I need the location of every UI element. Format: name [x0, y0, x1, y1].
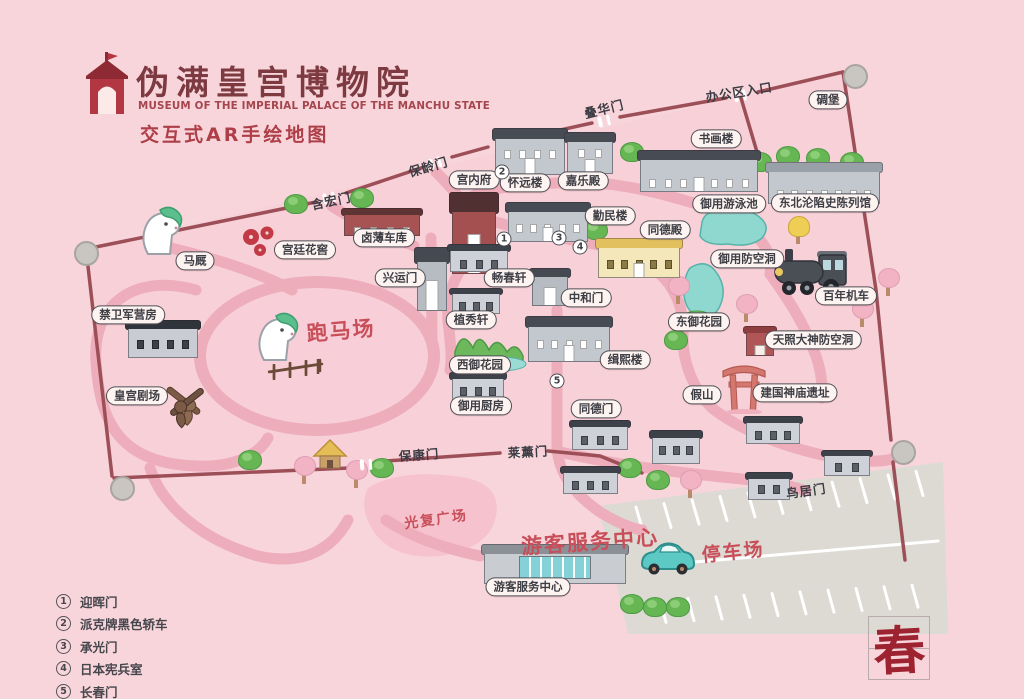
map-marker-2: 2	[495, 165, 510, 180]
building-house-b	[652, 430, 700, 464]
doorway	[525, 158, 536, 174]
window-row	[564, 481, 617, 490]
place-label-guangfuguangchang: 光复广场	[403, 505, 469, 534]
building-tongde-gate	[572, 420, 628, 450]
bush-icon	[664, 330, 688, 350]
window	[530, 224, 537, 233]
window	[673, 446, 680, 455]
window	[504, 150, 511, 159]
building-body	[567, 142, 613, 174]
window	[711, 179, 718, 188]
window	[595, 340, 602, 349]
building-body	[563, 473, 618, 494]
bubble-yuyongchufang: 御用厨房	[450, 396, 512, 415]
bubble-gongtinghuajiao: 宫廷花窖	[274, 240, 336, 259]
bubble-jialedian: 嘉乐殿	[558, 171, 609, 190]
yellow-hut-icon	[312, 438, 348, 474]
window	[773, 485, 780, 494]
doorway	[634, 263, 645, 277]
building-body	[640, 160, 758, 192]
window-row	[453, 387, 503, 396]
bush-icon	[646, 470, 670, 490]
window	[595, 149, 602, 158]
gate-doorway	[426, 280, 439, 310]
legend-label: 长春门	[80, 682, 118, 699]
legend-number-1: 1	[56, 594, 71, 609]
legend-label: 日本宪兵室	[80, 659, 143, 678]
window	[602, 481, 609, 490]
window	[607, 260, 614, 269]
map-marker-5: 5	[550, 374, 565, 389]
building-body	[508, 212, 588, 242]
window	[581, 436, 588, 445]
window	[726, 179, 733, 188]
gate-opening-icon	[360, 458, 377, 470]
building-house-a	[563, 466, 618, 494]
building-qinmin	[508, 202, 588, 242]
bunker-tower-icon	[843, 64, 868, 89]
bubble-majiu: 马厩	[176, 251, 215, 270]
window	[659, 446, 666, 455]
building-body	[748, 479, 790, 500]
window	[742, 179, 749, 188]
window	[473, 302, 480, 311]
window	[486, 302, 493, 311]
building-barracks	[128, 320, 198, 358]
spring-seal: 春	[868, 616, 930, 680]
window	[182, 340, 189, 349]
building-jiale	[567, 132, 613, 174]
window	[572, 481, 579, 490]
window	[612, 436, 619, 445]
bubble-xingyunmen: 兴运门	[375, 268, 426, 287]
building-house-d	[748, 472, 790, 500]
building-body	[598, 248, 680, 278]
map-marker-4: 4	[573, 240, 588, 255]
window	[460, 260, 467, 269]
bubble-gongneifu: 宫内府	[449, 170, 500, 189]
legend-number-2: 2	[56, 616, 71, 631]
building-body	[572, 427, 628, 450]
gate-label-baolingmen: 保龄门	[406, 151, 450, 180]
window	[587, 481, 594, 490]
doorway	[564, 345, 575, 361]
building-body	[528, 327, 610, 362]
window-row	[749, 485, 789, 494]
legend-item-3: 3承光门	[56, 635, 168, 658]
window	[549, 150, 556, 159]
window	[665, 260, 672, 269]
cherry-tree-icon	[878, 268, 900, 296]
yellow-tree-icon	[788, 216, 810, 244]
map-subtitle-ar: 交互式AR手绘地图	[140, 120, 329, 147]
window	[665, 179, 672, 188]
building-body	[746, 423, 800, 444]
window	[578, 149, 585, 158]
museum-title-en: MUSEUM OF THE IMPERIAL PALACE OF THE MAN…	[138, 100, 490, 112]
window	[784, 431, 791, 440]
window	[758, 485, 765, 494]
bubble-jiashan: 假山	[683, 385, 722, 404]
gate-label-laixunmen: 莱薰门	[507, 440, 548, 461]
window	[770, 431, 777, 440]
bubble-fuwuzhongxin: 游客服务中心	[486, 577, 571, 596]
bush-icon	[643, 597, 667, 617]
building-shuhua	[640, 150, 758, 192]
cherry-tree-icon	[294, 456, 316, 484]
bubble-lubucheku: 卤薄车库	[353, 228, 415, 247]
window	[835, 463, 842, 472]
legend-item-5: 5长春门	[56, 680, 168, 699]
window-row	[451, 260, 507, 269]
window	[516, 224, 523, 233]
window	[460, 387, 467, 396]
bunker-tower-icon	[891, 440, 916, 465]
building-tongde-hall	[598, 238, 680, 278]
bubble-jinweijun: 禁卫军营房	[91, 305, 165, 324]
window	[852, 463, 859, 472]
bubble-jixilou: 缉熙楼	[600, 350, 651, 369]
window	[580, 340, 587, 349]
legend-label: 派克牌黑色轿车	[80, 614, 168, 633]
building-shrine-house	[746, 416, 800, 444]
bush-icon	[620, 594, 644, 614]
cherry-tree-icon	[668, 276, 690, 304]
bubble-zhixiuxuan: 植秀轩	[446, 310, 497, 329]
crossed-pistols-icon	[160, 382, 212, 436]
window	[137, 340, 144, 349]
bubble-yuyongyouyongchi: 御用游泳池	[692, 194, 766, 213]
building-body	[824, 456, 870, 476]
map-legend: 1迎晖门2派克牌黑色轿车3承光门4日本宪兵室5长春门	[56, 590, 168, 699]
legend-number-3: 3	[56, 639, 71, 654]
bush-icon	[618, 458, 642, 478]
bubble-jianguoshenmiao: 建国神庙遗址	[753, 383, 838, 402]
window-row	[453, 302, 499, 311]
legend-item-1: 1迎晖门	[56, 590, 168, 613]
bubble-huanggongjuchang: 皇宫剧场	[106, 386, 168, 405]
legend-number-4: 4	[56, 661, 71, 676]
doorway	[755, 345, 766, 355]
cherry-tree-icon	[736, 294, 758, 322]
bunker-tower-icon	[110, 476, 135, 501]
bubble-bainianjiche: 百年机车	[815, 286, 877, 305]
legend-label: 承光门	[80, 637, 118, 656]
window	[621, 260, 628, 269]
building-jixi	[528, 316, 610, 362]
window-row	[573, 436, 627, 445]
window	[475, 387, 482, 396]
window	[152, 340, 159, 349]
bubble-changchunxuan: 畅春轩	[484, 268, 535, 287]
bunker-tower-icon	[74, 241, 99, 266]
hand-drawn-map-poster: 碉堡书画楼嘉乐殿怀远楼宫内府勤民楼同德殿御用游泳池东北沦陷史陈列馆御用防空洞百年…	[0, 0, 1024, 699]
window	[680, 179, 687, 188]
gate-doorway	[544, 287, 557, 305]
bubble-qinminlou: 勤民楼	[585, 206, 636, 225]
window-row	[653, 446, 699, 455]
window-row	[747, 431, 799, 440]
bubble-yuyongfangkongdong: 御用防空洞	[710, 249, 784, 268]
window	[537, 340, 544, 349]
legend-number-5: 5	[56, 684, 71, 699]
place-label-tingchechang: 停车场	[700, 534, 765, 567]
place-label-paomachang: 跑马场	[305, 312, 376, 348]
window	[476, 260, 483, 269]
map-marker-3: 3	[552, 231, 567, 246]
bubble-zhonghemen: 中和门	[561, 288, 612, 307]
window	[649, 179, 656, 188]
window	[755, 431, 762, 440]
window	[459, 302, 466, 311]
bubble-chenlieguan: 东北沦陷史陈列馆	[771, 193, 879, 212]
museum-title-cn: 伪满皇宫博物院	[136, 56, 416, 104]
window	[551, 340, 558, 349]
window-row	[568, 149, 612, 158]
window	[686, 446, 693, 455]
window	[650, 260, 657, 269]
gate-label-baokangmen: 保康门	[398, 443, 440, 465]
bubble-tianzhaodashen: 天照大神防空洞	[765, 330, 862, 349]
building-body	[128, 329, 198, 358]
doorway	[694, 177, 705, 191]
building-body	[652, 438, 700, 464]
legend-item-2: 2派克牌黑色轿车	[56, 613, 168, 636]
window	[573, 224, 580, 233]
bubble-dongyuhuayuan: 东御花园	[668, 312, 730, 331]
museum-gate-logo-icon	[82, 52, 132, 118]
legend-label: 迎晖门	[80, 592, 118, 611]
window	[489, 387, 496, 396]
bubble-diaobao: 碉堡	[809, 90, 848, 109]
bubble-xiyuhuayuan: 西御花园	[449, 355, 511, 374]
window	[167, 340, 174, 349]
bubble-tongdedian: 同德殿	[640, 220, 691, 239]
bubble-tongdemen: 同德门	[571, 399, 622, 418]
cherry-tree-icon	[680, 470, 702, 498]
bush-icon	[666, 597, 690, 617]
window-row	[129, 340, 197, 349]
bush-icon	[350, 188, 374, 208]
bubble-shuhualou: 书画楼	[691, 129, 742, 148]
bush-icon	[238, 450, 262, 470]
window-row	[825, 463, 869, 472]
bush-icon	[284, 194, 308, 214]
map-marker-1: 1	[497, 232, 512, 247]
gate-label-niaojumen: 鸟居门	[785, 478, 828, 502]
track-fence-icon	[266, 356, 322, 386]
window	[491, 260, 498, 269]
window	[597, 436, 604, 445]
spring-seal-character: 春	[871, 608, 927, 686]
legend-item-4: 4日本宪兵室	[56, 658, 168, 681]
building-house-c	[824, 450, 870, 476]
